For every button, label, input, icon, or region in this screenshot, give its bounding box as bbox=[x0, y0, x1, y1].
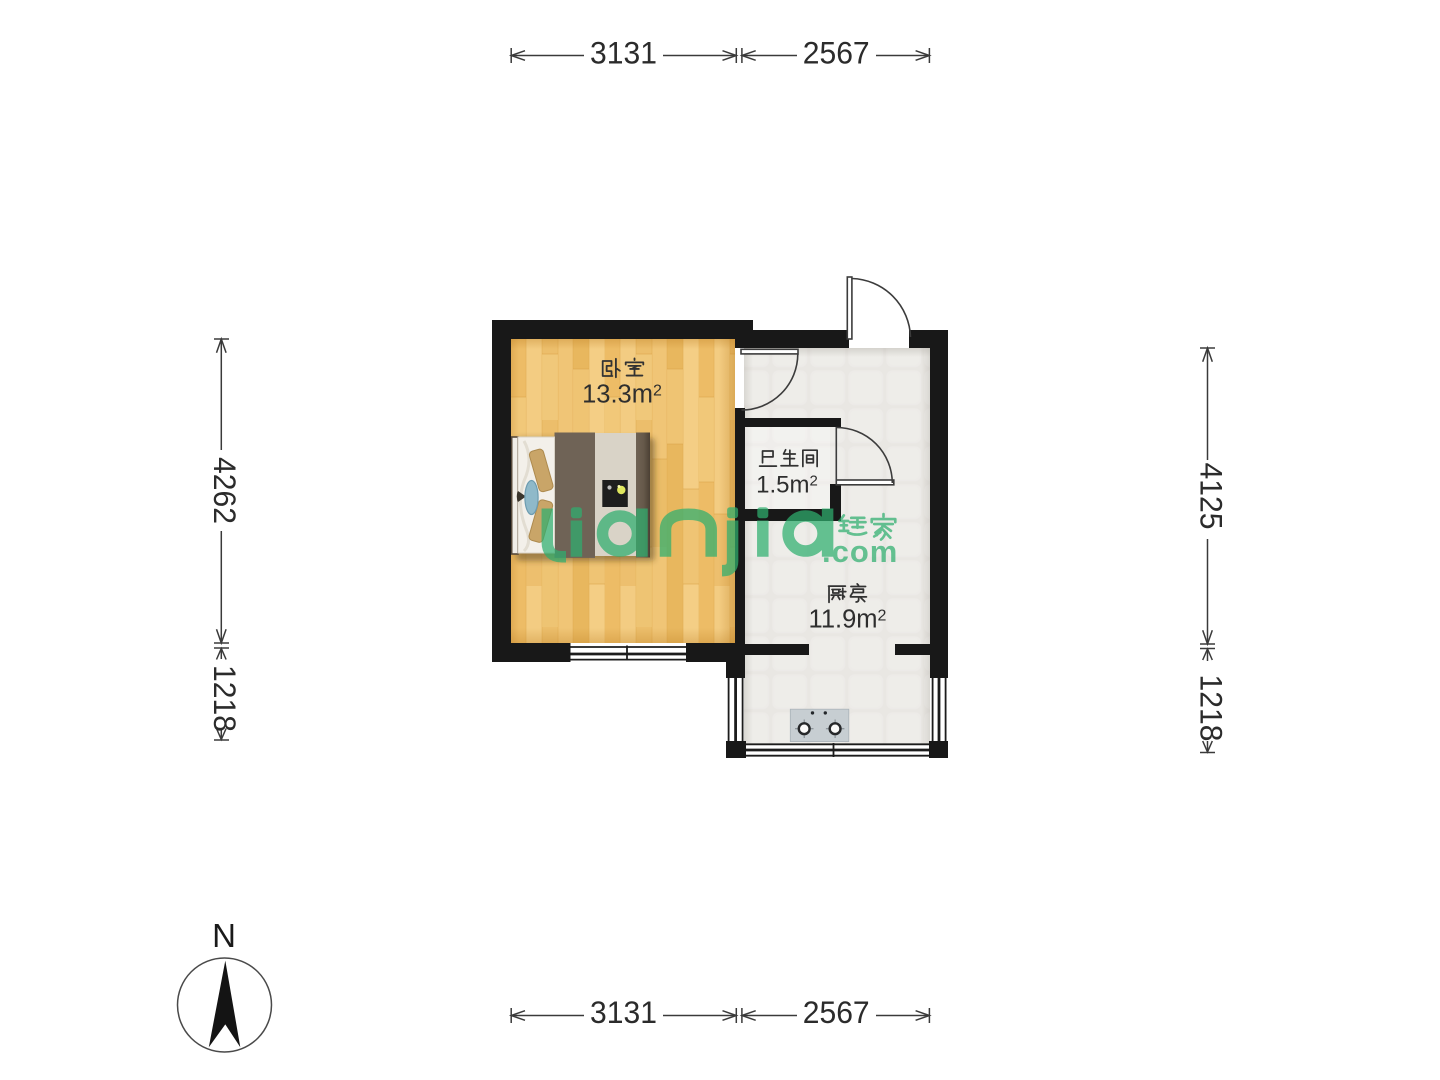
svg-text:4125: 4125 bbox=[1193, 463, 1229, 530]
svg-text:4262: 4262 bbox=[207, 457, 243, 524]
svg-text:13.3m2: 13.3m2 bbox=[582, 381, 662, 409]
svg-text:1.5m2: 1.5m2 bbox=[756, 472, 818, 499]
svg-text:.com: .com bbox=[822, 534, 898, 569]
svg-text:2567: 2567 bbox=[803, 994, 870, 1030]
svg-text:1218: 1218 bbox=[207, 665, 243, 732]
svg-text:N: N bbox=[212, 917, 236, 954]
svg-text:2567: 2567 bbox=[803, 35, 870, 71]
svg-text:1218: 1218 bbox=[1193, 675, 1229, 742]
svg-text:3131: 3131 bbox=[590, 35, 657, 71]
svg-text:11.9m2: 11.9m2 bbox=[809, 606, 887, 634]
svg-text:3131: 3131 bbox=[590, 994, 657, 1030]
